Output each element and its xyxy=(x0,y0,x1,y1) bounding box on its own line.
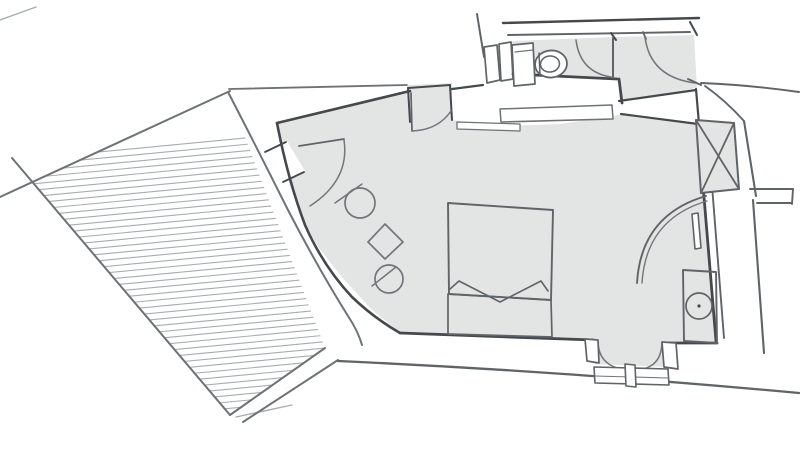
corner-sketch-line xyxy=(0,7,36,20)
top-wall-outer xyxy=(503,18,699,23)
exterior-long-wall xyxy=(338,361,799,393)
bath-window-bar-1 xyxy=(484,45,500,83)
floorplan-canvas xyxy=(0,0,800,458)
wall-shelf-strip-short xyxy=(457,122,520,131)
bath-left-end-line xyxy=(477,14,484,57)
french-door-left-jamb xyxy=(585,339,599,363)
top-wall-inner xyxy=(508,32,690,35)
terrace-edge-left xyxy=(12,158,230,415)
toilet-seat-bar xyxy=(539,53,540,75)
terrace-fold-line xyxy=(236,405,292,417)
toilet-cistern xyxy=(512,43,535,86)
top-right-exit-line xyxy=(701,83,799,92)
exterior-right-wall-upper xyxy=(744,121,756,196)
wall-shelf-strip-long xyxy=(500,105,613,122)
exterior-right-wall-lower xyxy=(753,200,764,353)
terrace-outer-bottom-wall xyxy=(243,360,338,422)
wall-step-line xyxy=(452,85,483,89)
floorplan-svg xyxy=(0,0,800,458)
wall-stub-cap xyxy=(792,189,793,204)
top-wall-right-cap xyxy=(690,22,697,35)
exterior-corner-diagonal xyxy=(705,86,744,121)
french-door-mullion xyxy=(625,364,636,387)
bedroom-top-wall-outer xyxy=(229,85,407,89)
french-door-right-jamb xyxy=(662,342,678,369)
vanity-basin-dot xyxy=(697,304,700,307)
vestibule-wall-jamb xyxy=(696,89,699,124)
bath-window-bar-2 xyxy=(499,42,513,81)
niche-door-leaf xyxy=(411,93,412,131)
